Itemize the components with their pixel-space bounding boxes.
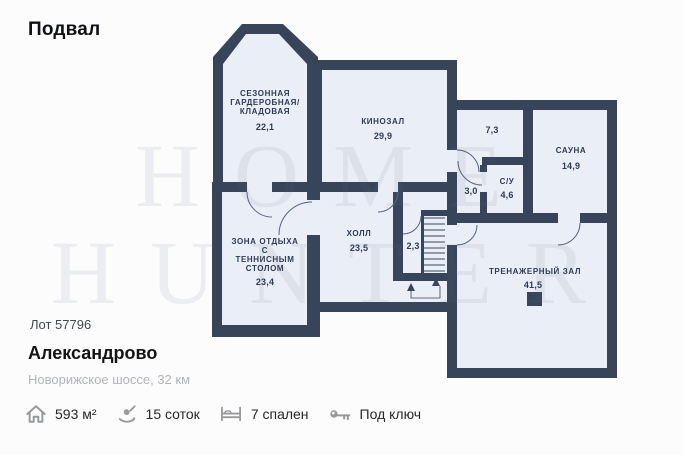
plan-room-fills [222, 34, 607, 368]
room-label-wardrobe-1: СЕЗОННАЯ [240, 89, 290, 98]
floor-plan-svg: СЕЗОННАЯ ГАРДЕРОБНАЯ/ КЛАДОВАЯ 22,1 КИНО… [195, 20, 625, 380]
feature-finish: Под ключ [328, 405, 422, 423]
room-area-bathroom: 4,6 [500, 190, 513, 200]
house-icon [25, 404, 47, 424]
room-label-hall: ХОЛЛ [347, 229, 372, 238]
room-label-lounge-1: ЗОНА ОТДЫХА [231, 237, 298, 246]
room-label-lounge-2: С [262, 246, 268, 255]
floor-title: Подвал [28, 19, 100, 41]
feature-finish-label: Под ключ [360, 406, 422, 422]
estate-location: Новорижское шоссе, 32 км [28, 372, 190, 387]
lot-number: Лот 57796 [30, 317, 91, 332]
room-area-gym: 41,5 [524, 280, 542, 290]
room-label-cinema: КИНОЗАЛ [361, 117, 404, 126]
feature-bedrooms-label: 7 спален [251, 406, 309, 422]
room-area-lounge: 23,4 [256, 277, 274, 287]
room-area-73: 7,3 [485, 125, 498, 135]
feature-area-label: 593 м² [55, 406, 97, 422]
room-area-cinema: 29,9 [374, 131, 392, 141]
room-label-wardrobe-2: ГАРДЕРОБНАЯ/ [230, 98, 300, 107]
room-area-stair-closet: 2,3 [406, 241, 419, 251]
key-icon [328, 405, 352, 423]
room-label-wardrobe-3: КЛАДОВАЯ [240, 107, 290, 116]
room-label-bathroom: С/У [500, 177, 515, 186]
room-label-sauna: САУНА [556, 146, 587, 155]
feature-area: 593 м² [25, 404, 97, 424]
room-label-lounge-3: ТЕННИСНЫМ [236, 255, 295, 264]
room-area-hall: 23,5 [350, 243, 368, 253]
feature-land-label: 15 соток [146, 406, 200, 422]
gym-column [527, 292, 542, 306]
room-area-corridor: 3,0 [464, 186, 477, 196]
floor-plan: СЕЗОННАЯ ГАРДЕРОБНАЯ/ КЛАДОВАЯ 22,1 КИНО… [195, 20, 625, 380]
room-area-wardrobe: 22,1 [256, 122, 274, 132]
room-label-gym: ТРЕНАЖЕРНЫЙ ЗАЛ [489, 267, 581, 276]
room-area-sauna: 14,9 [562, 161, 580, 171]
feature-row: 593 м² 15 соток 7 спален [25, 404, 440, 424]
bed-icon [219, 404, 243, 424]
land-icon [116, 404, 138, 424]
feature-bedrooms: 7 спален [219, 404, 309, 424]
feature-land: 15 соток [116, 404, 200, 424]
room-label-lounge-4: СТОЛОМ [246, 264, 284, 273]
estate-name: Александрово [28, 343, 157, 364]
